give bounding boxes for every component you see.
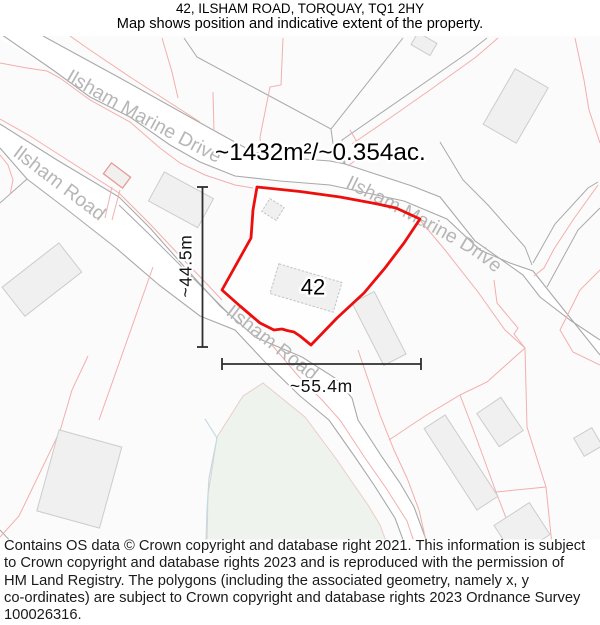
svg-text:~1432m²/~0.354ac.: ~1432m²/~0.354ac. [215,139,426,166]
svg-text:~55.4m: ~55.4m [290,376,353,396]
svg-text:~44.5m: ~44.5m [176,234,196,297]
svg-text:42: 42 [301,275,325,300]
